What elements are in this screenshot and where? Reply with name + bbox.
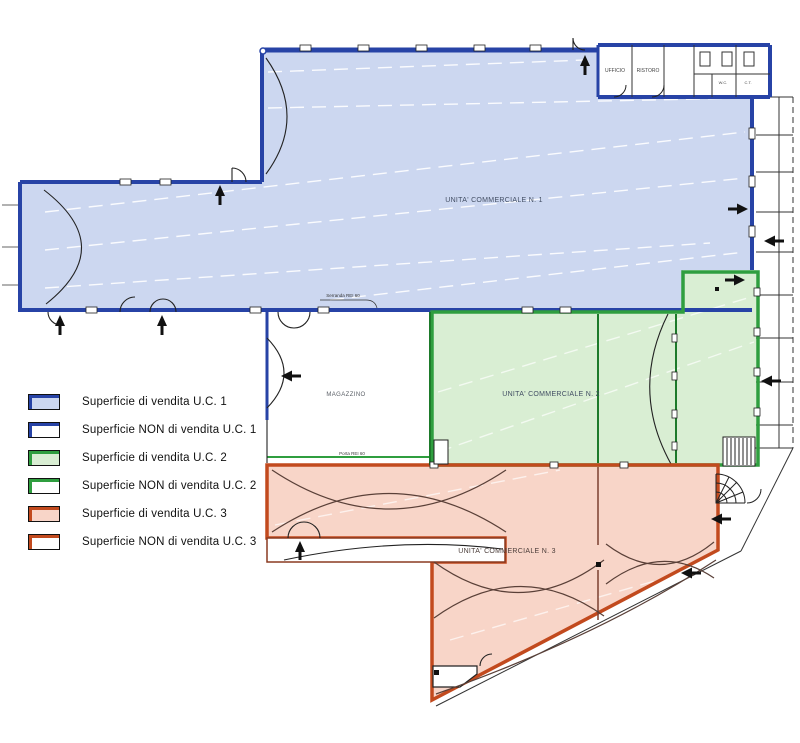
staircase [723, 437, 755, 466]
arrow-up [55, 315, 65, 335]
legend-item-non-vendita-uc1: Superficie NON di vendita U.C. 1 [28, 422, 257, 437]
legend-label: Superficie NON di vendita U.C. 2 [82, 480, 257, 492]
ufficio-label: UFFICIO [605, 68, 625, 74]
legend-item-vendita-uc2: Superficie di vendita U.C. 2 [28, 450, 257, 465]
wc-label: W.C. [719, 80, 728, 85]
arrow-up [157, 315, 167, 335]
arrow-left [764, 236, 784, 247]
spiral-stair [716, 474, 761, 503]
legend-item-vendita-uc3: Superficie di vendita U.C. 3 [28, 506, 257, 521]
reference-ticks [2, 205, 18, 285]
legend-swatch-blue-outline [28, 422, 60, 438]
legend-label: Superficie NON di vendita U.C. 3 [82, 536, 257, 548]
annotation-porta: Porta REI 60 [339, 451, 365, 456]
legend-item-non-vendita-uc2: Superficie NON di vendita U.C. 2 [28, 478, 257, 493]
legend-label: Superficie di vendita U.C. 2 [82, 452, 227, 464]
floor-plan: UNITA' COMMERCIALE N. 1 UNITA' COMMERCIA… [0, 0, 800, 743]
ct-label: C.T. [744, 80, 751, 85]
legend-item-non-vendita-uc3: Superficie NON di vendita U.C. 3 [28, 534, 257, 549]
legend-label: Superficie di vendita U.C. 3 [82, 508, 227, 520]
legend-swatch-blue-filled [28, 394, 60, 410]
legend-swatch-green-filled [28, 450, 60, 466]
legend-swatch-red-filled [28, 506, 60, 522]
ristoro-label: RISTORO [637, 68, 660, 74]
arrow-left [761, 376, 781, 387]
legend-swatch-red-outline [28, 534, 60, 550]
unit3-label: UNITA' COMMERCIALE N. 3 [458, 548, 556, 555]
green-door-room [434, 440, 448, 464]
unit2-label: UNITA' COMMERCIALE N. 2 [502, 391, 600, 398]
unit1-label: UNITA' COMMERCIALE N. 1 [445, 197, 543, 204]
legend-item-vendita-uc1: Superficie di vendita U.C. 1 [28, 394, 257, 409]
legend-swatch-green-outline [28, 478, 60, 494]
legend-label: Superficie NON di vendita U.C. 1 [82, 424, 257, 436]
magazzino-label: MAGAZZINO [326, 392, 365, 398]
annotation-serranda: Serranda REI 60 [326, 293, 360, 298]
floor-plan-page: UNITA' COMMERCIALE N. 1 UNITA' COMMERCIA… [0, 0, 800, 743]
legend: Superficie di vendita U.C. 1 Superficie … [28, 394, 257, 549]
triangle-notch-room [433, 666, 477, 687]
legend-label: Superficie di vendita U.C. 1 [82, 396, 227, 408]
magazzino-room [267, 312, 430, 465]
